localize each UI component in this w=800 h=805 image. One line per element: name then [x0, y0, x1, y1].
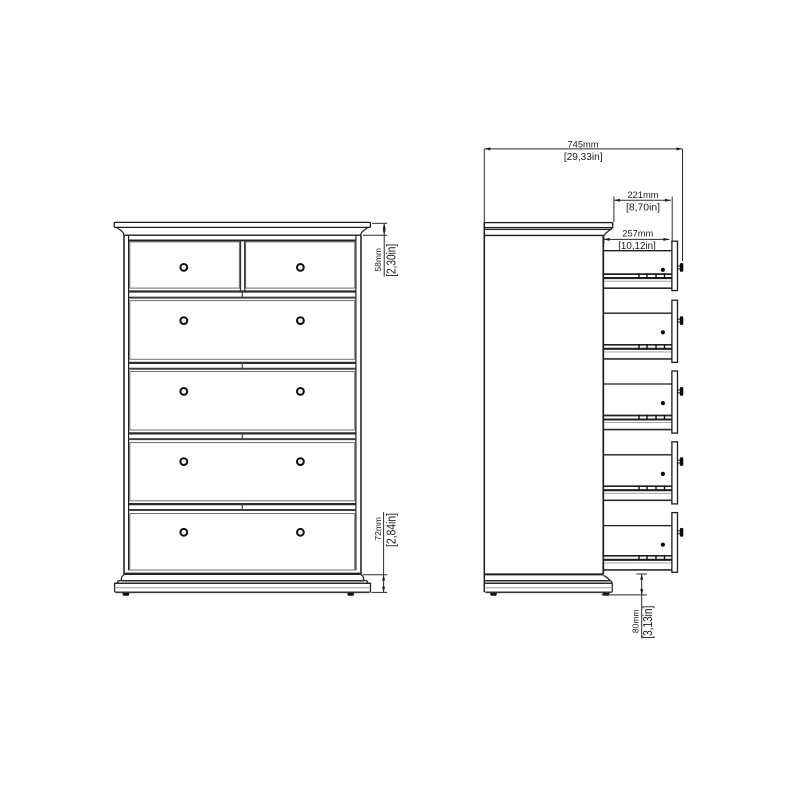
svg-text:221mm: 221mm: [627, 190, 658, 200]
svg-text:58mm: 58mm: [373, 248, 383, 272]
svg-text:[2,84in]: [2,84in]: [383, 513, 398, 547]
svg-text:[29,33in]: [29,33in]: [564, 152, 603, 163]
svg-text:257mm: 257mm: [622, 228, 653, 238]
svg-text:[3,13in]: [3,13in]: [640, 606, 655, 639]
svg-text:[2,30in]: [2,30in]: [383, 244, 398, 277]
svg-text:72mm: 72mm: [373, 517, 383, 541]
svg-text:745mm: 745mm: [567, 140, 598, 150]
svg-text:[8,70in]: [8,70in]: [626, 203, 660, 214]
svg-text:[10,12in]: [10,12in]: [618, 241, 656, 252]
